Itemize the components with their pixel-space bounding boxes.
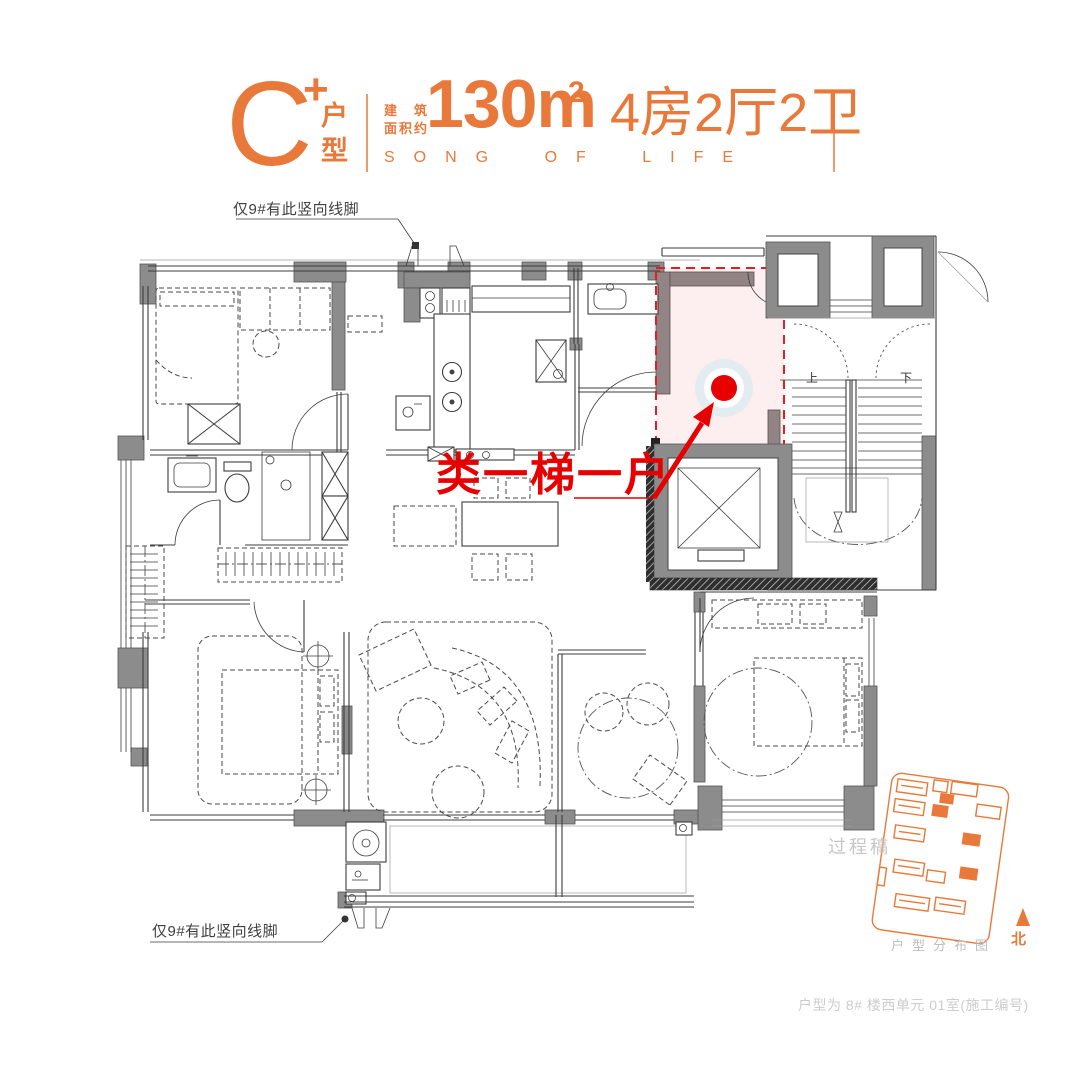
living-room	[359, 622, 552, 818]
note-top: 仅9#有此竖向线脚	[233, 198, 359, 219]
bathroom-2	[578, 284, 658, 393]
highlight-label: 类一梯一户	[436, 438, 671, 503]
unit-marker-dot	[711, 375, 737, 401]
leader-top	[236, 219, 464, 266]
stair-down-label: 下	[900, 371, 912, 385]
study-room	[558, 612, 703, 812]
sitemap-caption: 户型分布图	[891, 935, 996, 954]
note-bottom: 仅9#有此竖向线脚	[152, 920, 278, 941]
bedroom-2	[145, 600, 349, 812]
site-sketch	[871, 772, 1010, 945]
stairwell: 上 下	[766, 236, 988, 590]
balcony	[344, 815, 694, 928]
bathroom-main	[150, 450, 348, 545]
footer-caption: 户型为 8# 楼西单元 01室(施工编号)	[798, 995, 1029, 1015]
north-arrow-icon	[1016, 908, 1030, 926]
floor-plan-page: C + 户 型 建筑 面积约 130m 2 4房2厅2卫 SONG OF LIF…	[0, 0, 1079, 1090]
bedroom-1	[156, 288, 382, 452]
north-label: 北	[1011, 928, 1026, 949]
elevator	[646, 444, 877, 590]
draft-watermark: 过程稿	[828, 833, 891, 859]
stair-up-label: 上	[806, 371, 818, 385]
